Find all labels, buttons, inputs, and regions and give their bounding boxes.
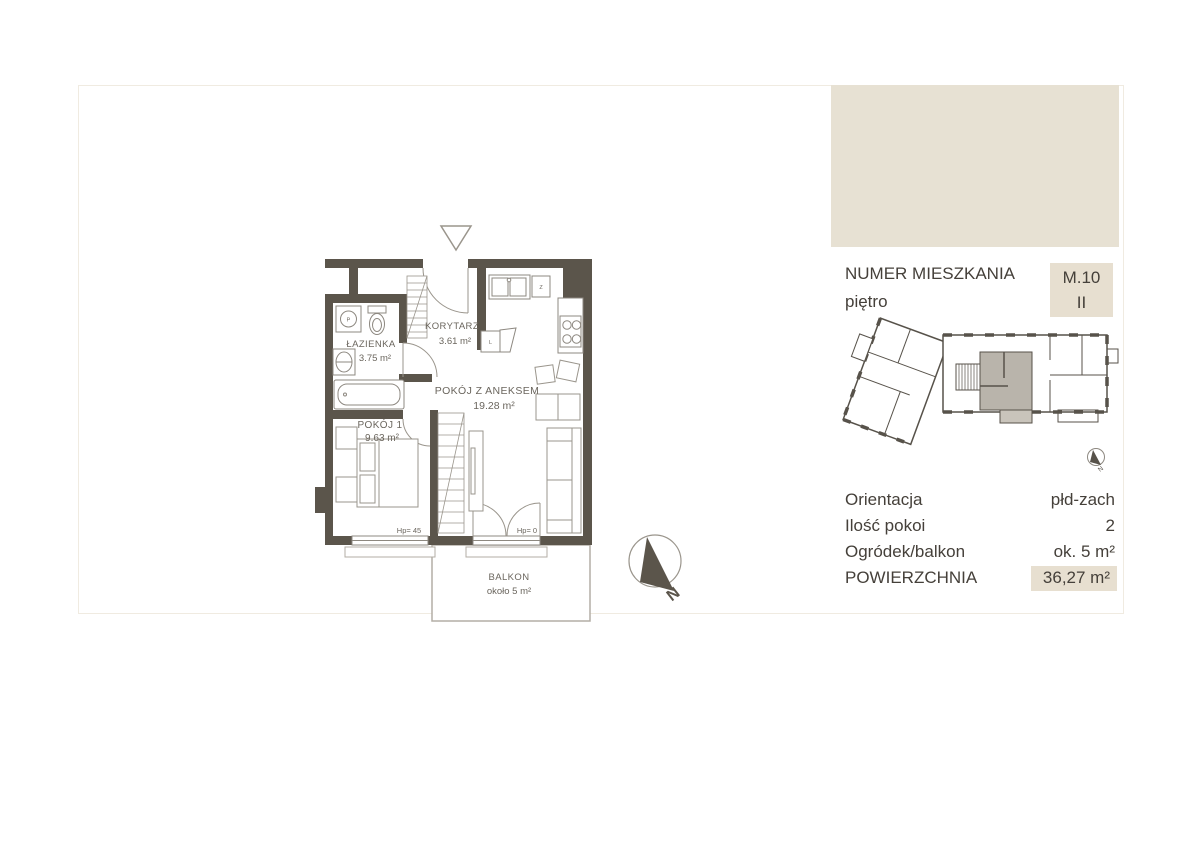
sofa-icon — [547, 428, 581, 533]
bedroom-window-label: Hp= 45 — [397, 526, 421, 535]
tv-board-icon — [469, 431, 483, 511]
apartment-number-box: M.10 II — [1050, 263, 1113, 317]
floor-value: II — [1077, 290, 1086, 315]
bathroom-label: ŁAZIENKA — [346, 339, 395, 350]
rooms-count-value: 2 — [1106, 516, 1115, 536]
living-area: 19.28 m² — [473, 400, 515, 412]
rooms-count-row: Ilość pokoi 2 — [831, 514, 1123, 540]
living-label: POKÓJ Z ANEKSEM — [435, 384, 540, 397]
balcony-label: BALKON — [489, 572, 530, 583]
mini-compass-n-label: N — [1097, 465, 1105, 474]
kitchen-sink-icon — [489, 275, 530, 299]
floorplan-canvas: ŁAZIENKA 3.75 m² KORYTARZ 3.61 m² POKÓJ … — [0, 0, 1200, 849]
floor-label: piętro — [845, 292, 888, 312]
toilet-icon — [368, 306, 386, 335]
dining-set — [535, 360, 580, 420]
garden-balcony-row: Ogródek/balkon ok. 5 m² — [831, 540, 1123, 566]
bathtub-icon — [334, 380, 404, 409]
mini-compass-icon: N — [1088, 449, 1106, 474]
apartment-number-value: M.10 — [1063, 265, 1101, 290]
washer-letter: P — [347, 318, 351, 324]
washbasin-icon — [333, 349, 355, 375]
entrance-marker-icon — [441, 226, 471, 250]
stove-icon — [558, 298, 583, 353]
garden-balcony-label: Ogródek/balkon — [845, 542, 965, 562]
garden-balcony-value: ok. 5 m² — [1054, 542, 1115, 562]
fridge-letter: L — [489, 340, 492, 346]
bedroom-window — [345, 536, 435, 557]
highlighted-unit-balcony — [1000, 410, 1032, 423]
area-row: POWIERZCHNIA 36,27 m² — [831, 566, 1123, 592]
bathroom-area: 3.75 m² — [359, 353, 391, 364]
area-label: POWIERZCHNIA — [845, 568, 977, 588]
apartment-number-label: NUMER MIESZKANIA — [845, 264, 1015, 284]
details-rows: Orientacja płd-zach Ilość pokoi 2 Ogróde… — [831, 488, 1123, 592]
flyer-page: ŁAZIENKA 3.75 m² KORYTARZ 3.61 m² POKÓJ … — [0, 0, 1200, 849]
rooms-count-label: Ilość pokoi — [845, 516, 925, 536]
balcony-window-label: Hp= 0 — [517, 526, 537, 535]
bedroom-wardrobe — [438, 413, 464, 533]
orientation-label: Orientacja — [845, 490, 922, 510]
corridor-label: KORYTARZ — [425, 321, 479, 332]
orientation-value: płd-zach — [1051, 490, 1115, 510]
corridor-area: 3.61 m² — [439, 336, 471, 347]
fridge-icon — [481, 328, 516, 352]
compass-icon: N — [629, 535, 683, 605]
balcony-area: około 5 m² — [487, 586, 531, 597]
orientation-row: Orientacja płd-zach — [831, 488, 1123, 514]
bedroom-area: 9.63 m² — [365, 433, 400, 444]
balcony-door-threshold — [466, 536, 547, 557]
building-mini-plan — [830, 313, 1118, 444]
bedroom-label: POKÓJ 1 — [357, 418, 402, 431]
area-value: 36,27 m² — [1031, 566, 1117, 591]
